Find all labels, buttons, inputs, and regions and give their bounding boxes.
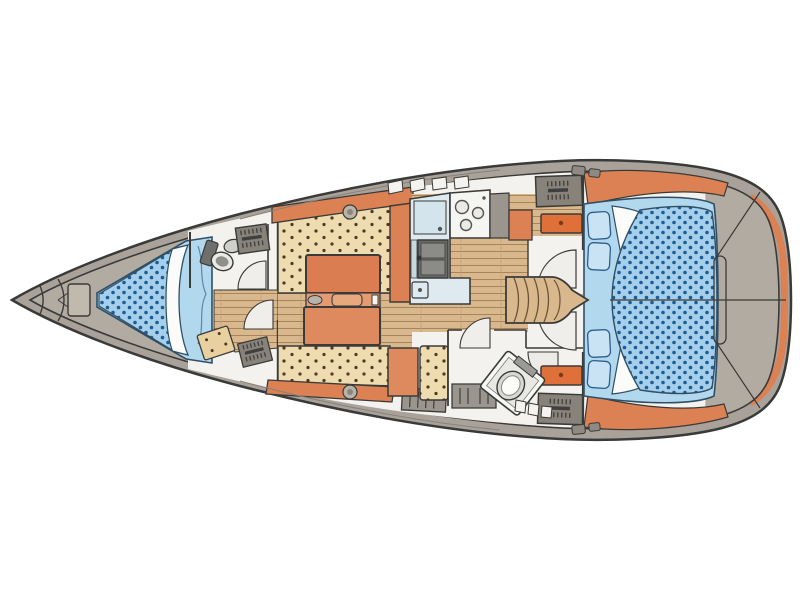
counter-knob: [438, 227, 442, 231]
window-icon: [528, 403, 539, 416]
window-icon: [541, 406, 552, 418]
nav-seat: [420, 346, 448, 400]
window-icon: [388, 180, 403, 194]
table-latch: [372, 295, 378, 305]
table-cupholder: [308, 296, 322, 305]
deck-hatch-aft-inner: [347, 389, 353, 395]
pillow-icon: [587, 360, 611, 388]
burner-icon: [456, 201, 469, 214]
appliance-knob: [418, 288, 422, 292]
sink-side-panel: [411, 240, 417, 278]
salon-table: [304, 255, 380, 345]
sink-basin: [421, 260, 445, 275]
deck-hatch-forward-inner: [347, 209, 353, 215]
floor-plan-svg: [0, 0, 800, 600]
winch-icon: [572, 424, 586, 434]
pillow-icon: [587, 329, 610, 357]
boat-floor-plan: [0, 0, 800, 600]
hanging-locker-upper: [535, 175, 582, 207]
faucet-icon: [417, 256, 422, 261]
winch-icon: [589, 422, 601, 431]
pillow-icon: [587, 242, 610, 270]
window-icon: [432, 177, 447, 190]
window-icon: [410, 178, 425, 192]
window-icon: [515, 400, 526, 413]
salon-cabinet: [390, 203, 412, 302]
galley-cabinet-orange: [509, 210, 532, 240]
settee-lower: [278, 346, 392, 386]
burner-icon: [473, 208, 484, 219]
galley-counter-aft: [490, 193, 509, 238]
chain-locker-box: [68, 284, 90, 316]
burner-icon: [461, 220, 472, 231]
window-icon: [454, 176, 469, 189]
forward-hanging-locker: [235, 224, 269, 254]
drawer-knob: [559, 373, 563, 377]
drawer-knob: [559, 221, 563, 225]
sink-basin: [421, 243, 445, 258]
winch-icon: [572, 165, 586, 175]
chart-table: [388, 348, 418, 396]
stove-knob: [482, 196, 485, 199]
table-leaf-handle: [332, 294, 362, 306]
pillow-icon: [587, 211, 611, 239]
winch-icon: [589, 168, 601, 177]
